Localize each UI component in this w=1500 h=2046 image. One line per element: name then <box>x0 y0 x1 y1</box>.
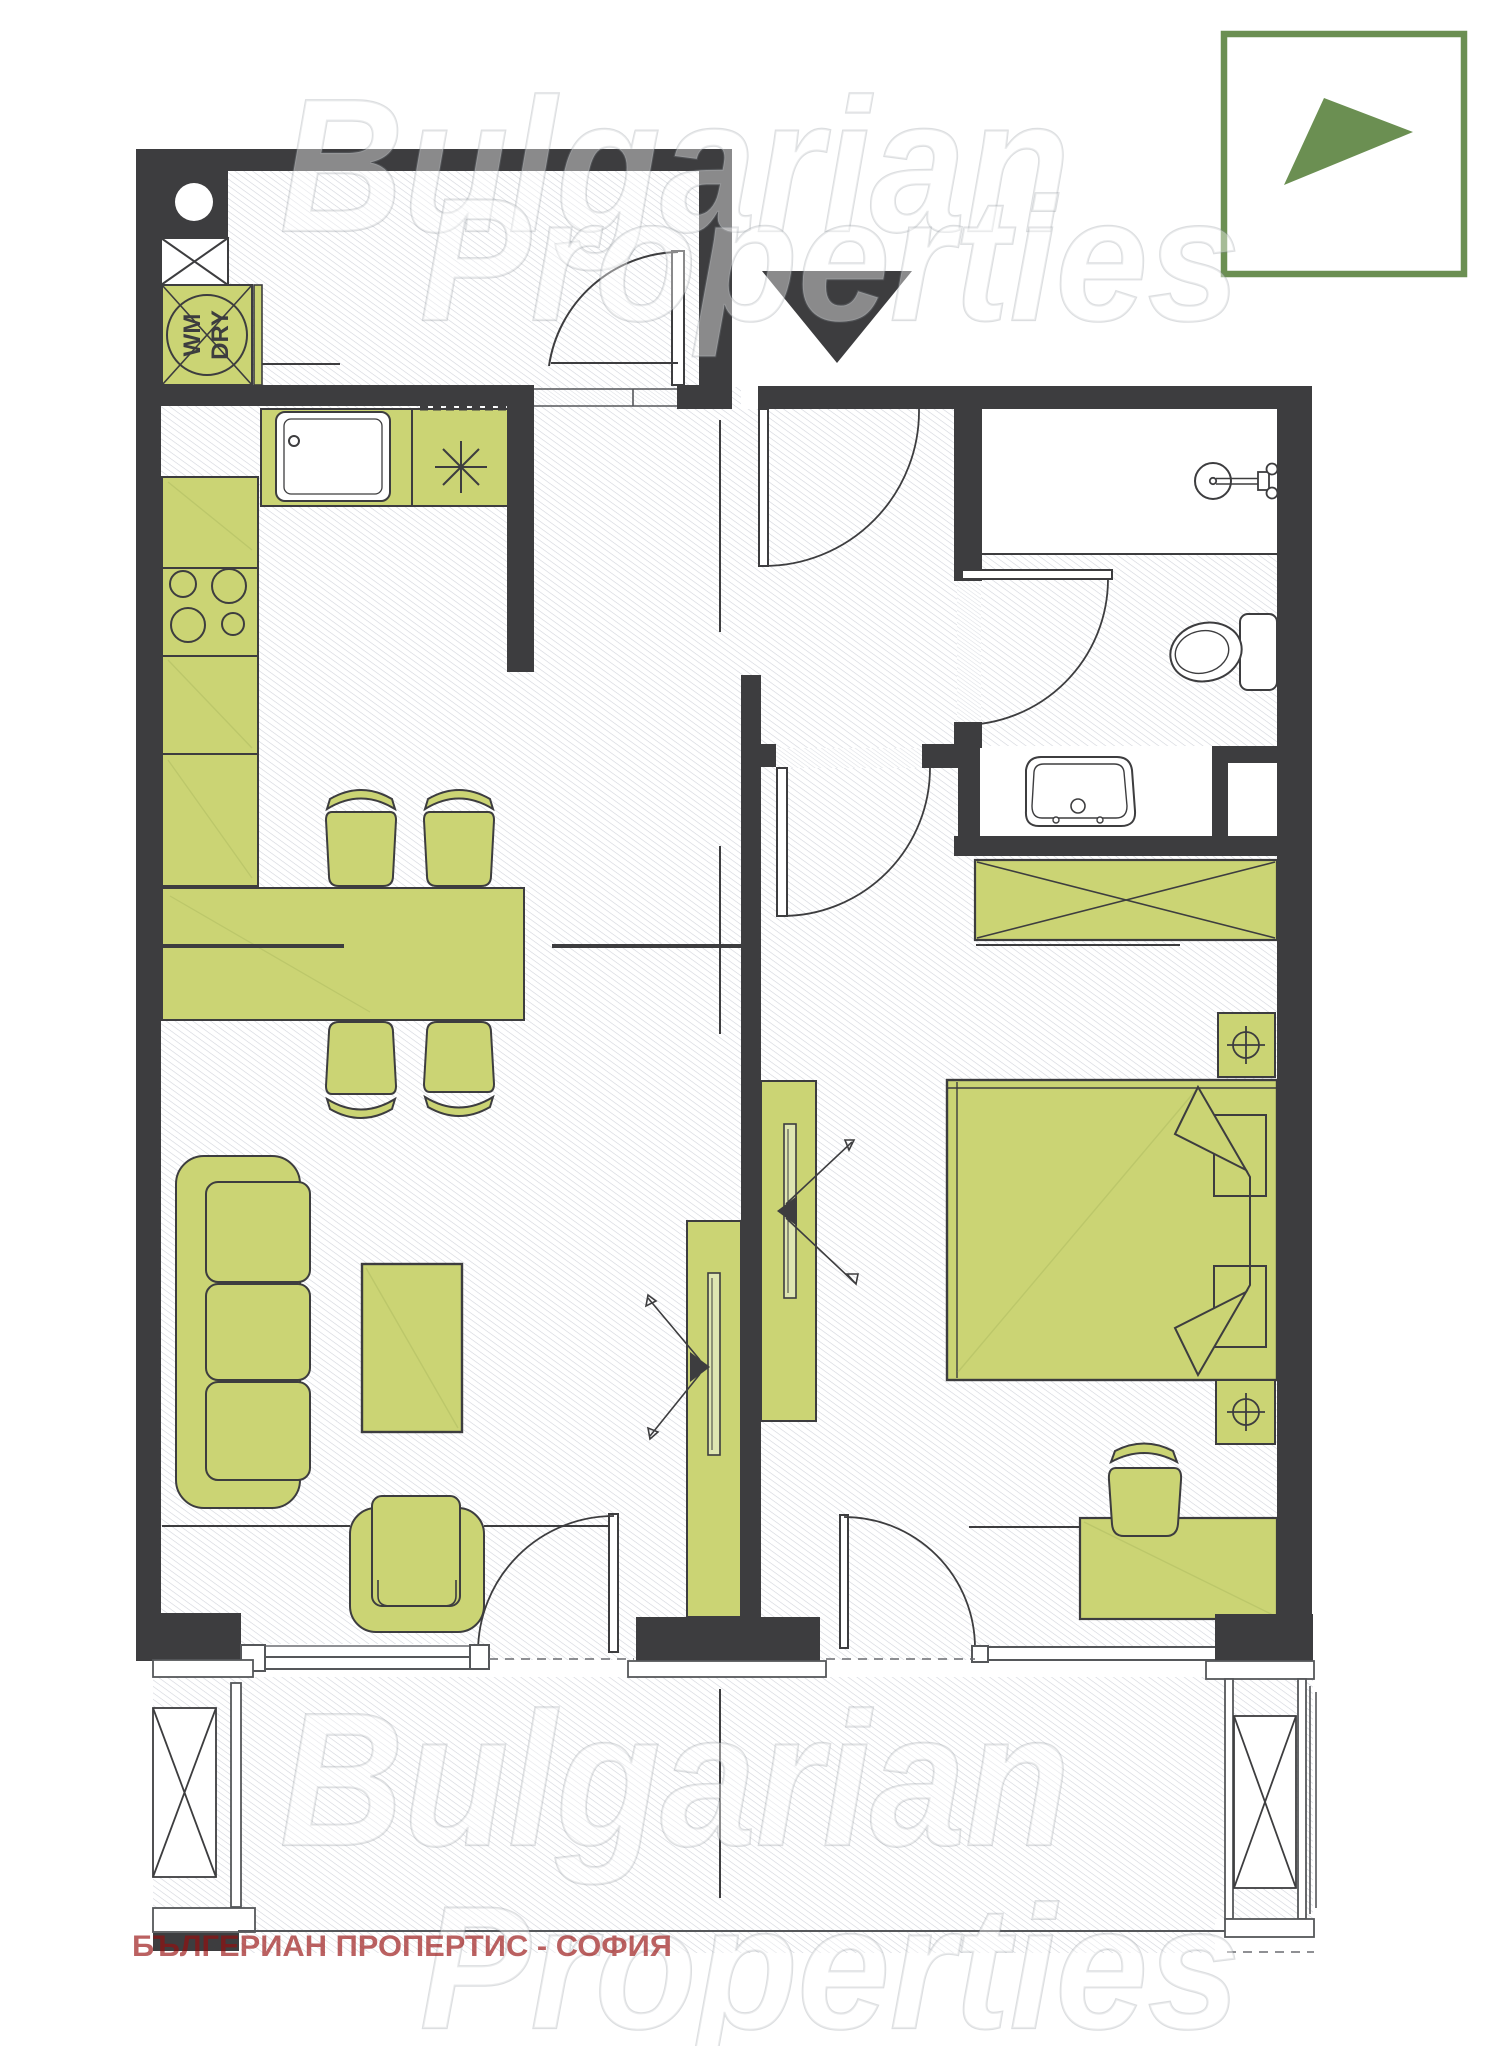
svg-text:DRY: DRY <box>207 310 234 360</box>
svg-text:Properties: Properties <box>420 163 1240 358</box>
svg-text:Bulgarian: Bulgarian <box>280 1674 1070 1886</box>
svg-text:БЪЛГЕРИАН ПРОПЕРТИС - СОФИЯ: БЪЛГЕРИАН ПРОПЕРТИС - СОФИЯ <box>132 1930 672 1963</box>
svg-text:WM: WM <box>179 314 206 357</box>
